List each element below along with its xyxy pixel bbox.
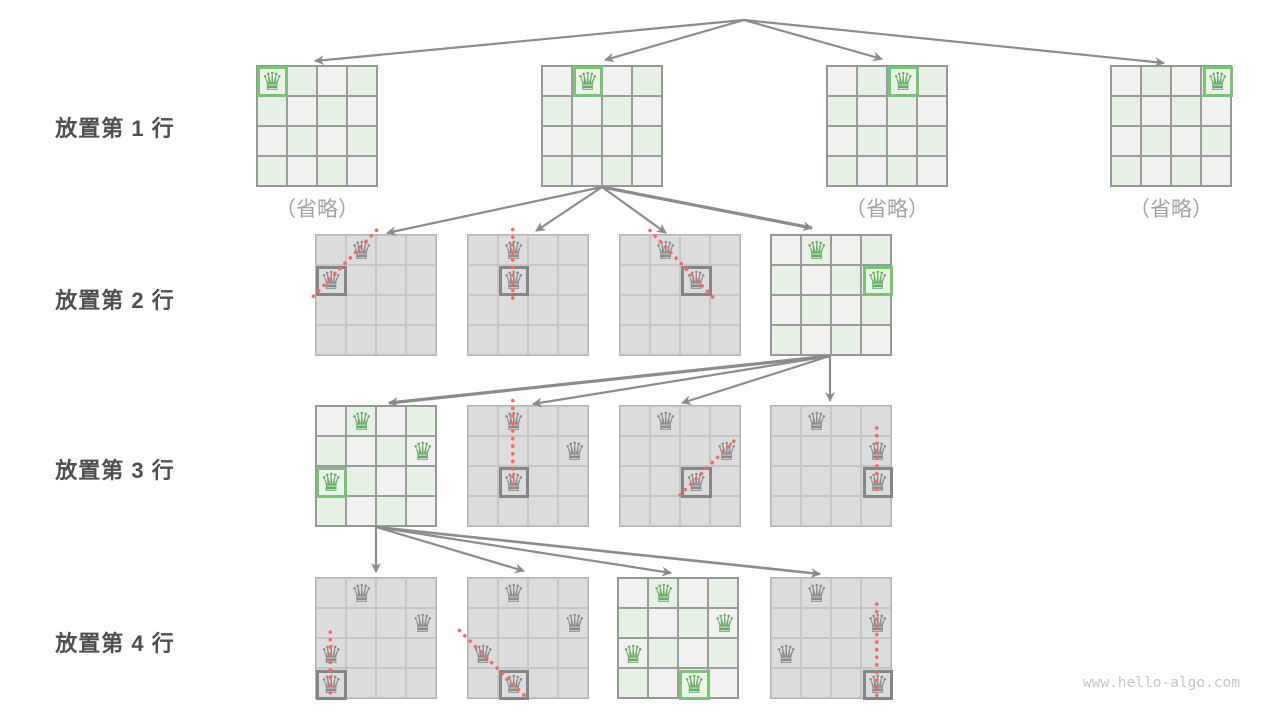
board-cell bbox=[528, 496, 558, 526]
tree-arrow bbox=[387, 187, 602, 233]
board-cell bbox=[406, 668, 436, 698]
board-cell bbox=[632, 126, 662, 156]
board-cell bbox=[831, 265, 861, 295]
board-cell bbox=[861, 436, 891, 466]
tree-arrow bbox=[533, 356, 830, 404]
new-queen-highlight-box bbox=[573, 66, 604, 97]
omitted-label: （省略） bbox=[256, 193, 378, 223]
board-cell bbox=[771, 406, 801, 436]
board-cell bbox=[1171, 66, 1201, 96]
board-cell bbox=[801, 265, 831, 295]
board-cell bbox=[801, 466, 831, 496]
board-cell bbox=[602, 126, 632, 156]
board-cell bbox=[650, 325, 680, 355]
row3-board4: ♛♛♛ bbox=[770, 405, 892, 527]
board-cell bbox=[801, 638, 831, 668]
board-cell bbox=[468, 265, 498, 295]
board-cell bbox=[861, 325, 891, 355]
board-cell bbox=[1141, 156, 1171, 186]
board-cell bbox=[771, 466, 801, 496]
board-cell bbox=[801, 496, 831, 526]
new-queen-highlight-box bbox=[681, 467, 712, 498]
new-queen-highlight-box bbox=[1203, 66, 1234, 97]
board-cell bbox=[406, 235, 436, 265]
board-cell bbox=[346, 436, 376, 466]
board-cell bbox=[572, 96, 602, 126]
board-cell bbox=[316, 496, 346, 526]
board-cell bbox=[498, 578, 528, 608]
board-cell bbox=[827, 96, 857, 126]
board-cell bbox=[620, 325, 650, 355]
tree-arrow bbox=[376, 527, 524, 571]
board-cell bbox=[346, 325, 376, 355]
tree-arrow bbox=[602, 187, 812, 228]
board-cell bbox=[710, 436, 740, 466]
board-cell bbox=[771, 325, 801, 355]
omitted-label: （省略） bbox=[1110, 193, 1232, 223]
row-label-place-row-4: 放置第 4 行 bbox=[30, 626, 200, 658]
board-cell bbox=[528, 608, 558, 638]
board-cell bbox=[468, 668, 498, 698]
new-queen-highlight-box bbox=[316, 266, 347, 297]
board-cell bbox=[316, 436, 346, 466]
board-cell bbox=[376, 235, 406, 265]
row4-board4: ♛♛♛♛ bbox=[770, 577, 892, 699]
board-cell bbox=[468, 466, 498, 496]
tree-arrow bbox=[376, 527, 671, 573]
board-cell bbox=[620, 295, 650, 325]
board-cell bbox=[468, 406, 498, 436]
board-cell bbox=[316, 406, 346, 436]
board-cell bbox=[857, 156, 887, 186]
board-cell bbox=[346, 638, 376, 668]
board-cell bbox=[317, 66, 347, 96]
new-queen-highlight-box bbox=[679, 670, 710, 701]
board-cell bbox=[468, 325, 498, 355]
new-queen-highlight-box bbox=[316, 467, 347, 498]
board-cell bbox=[632, 66, 662, 96]
board-cell bbox=[558, 325, 588, 355]
board-cell bbox=[346, 235, 376, 265]
board-cell bbox=[771, 265, 801, 295]
board-cell bbox=[710, 265, 740, 295]
board-cell bbox=[528, 325, 558, 355]
board-cell bbox=[376, 325, 406, 355]
board-cell bbox=[316, 608, 346, 638]
board-cell bbox=[708, 578, 738, 608]
board-cell bbox=[542, 96, 572, 126]
new-queen-highlight-box bbox=[863, 670, 894, 701]
board-cell bbox=[801, 578, 831, 608]
new-queen-highlight-box bbox=[499, 266, 530, 297]
board-cell bbox=[1141, 96, 1171, 126]
board-cell bbox=[680, 436, 710, 466]
tree-arrow bbox=[682, 356, 830, 403]
watermark-text: www.hello-algo.com bbox=[1083, 675, 1240, 691]
board-cell bbox=[1111, 126, 1141, 156]
new-queen-highlight-box bbox=[257, 66, 288, 97]
board-cell bbox=[406, 578, 436, 608]
tree-arrow bbox=[744, 20, 1164, 63]
board-cell bbox=[558, 638, 588, 668]
row1-board2: ♛ bbox=[541, 65, 663, 187]
board-cell bbox=[558, 436, 588, 466]
board-cell bbox=[316, 325, 346, 355]
board-cell bbox=[1171, 126, 1201, 156]
board-cell bbox=[1171, 156, 1201, 186]
board-cell bbox=[376, 466, 406, 496]
board-cell bbox=[376, 496, 406, 526]
board-cell bbox=[347, 96, 377, 126]
new-queen-highlight-box bbox=[316, 670, 347, 701]
board-cell bbox=[498, 436, 528, 466]
board-cell bbox=[406, 325, 436, 355]
board-cell bbox=[771, 295, 801, 325]
board-cell bbox=[680, 235, 710, 265]
board-cell bbox=[528, 578, 558, 608]
row3-board1: ♛♛♛ bbox=[315, 405, 437, 527]
board-cell bbox=[346, 668, 376, 698]
board-cell bbox=[347, 156, 377, 186]
board-cell bbox=[468, 235, 498, 265]
board-cell bbox=[771, 608, 801, 638]
board-cell bbox=[528, 638, 558, 668]
board-cell bbox=[498, 235, 528, 265]
board-cell bbox=[827, 156, 857, 186]
board-cell bbox=[346, 608, 376, 638]
board-cell bbox=[771, 638, 801, 668]
board-cell bbox=[680, 325, 710, 355]
board-cell bbox=[648, 668, 678, 698]
board-cell bbox=[648, 608, 678, 638]
tree-arrow bbox=[376, 527, 820, 574]
board-cell bbox=[376, 638, 406, 668]
row1-board3: ♛ bbox=[826, 65, 948, 187]
board-cell bbox=[498, 406, 528, 436]
board-cell bbox=[528, 436, 558, 466]
board-cell bbox=[1111, 66, 1141, 96]
new-queen-highlight-box bbox=[863, 266, 894, 297]
board-cell bbox=[346, 466, 376, 496]
board-cell bbox=[861, 578, 891, 608]
board-cell bbox=[618, 638, 648, 668]
board-cell bbox=[558, 608, 588, 638]
row-label-place-row-2: 放置第 2 行 bbox=[30, 283, 200, 315]
board-cell bbox=[801, 235, 831, 265]
board-cell bbox=[1201, 156, 1231, 186]
board-cell bbox=[376, 608, 406, 638]
board-cell bbox=[620, 235, 650, 265]
board-cell bbox=[861, 406, 891, 436]
board-cell bbox=[498, 638, 528, 668]
board-cell bbox=[528, 668, 558, 698]
new-queen-highlight-box bbox=[499, 670, 530, 701]
board-cell bbox=[831, 436, 861, 466]
board-cell bbox=[680, 406, 710, 436]
board-cell bbox=[710, 295, 740, 325]
board-cell bbox=[618, 578, 648, 608]
board-cell bbox=[406, 608, 436, 638]
board-cell bbox=[648, 578, 678, 608]
board-cell bbox=[468, 295, 498, 325]
board-cell bbox=[650, 295, 680, 325]
board-cell bbox=[678, 578, 708, 608]
board-cell bbox=[468, 436, 498, 466]
board-cell bbox=[1201, 96, 1231, 126]
board-cell bbox=[528, 265, 558, 295]
board-cell bbox=[708, 668, 738, 698]
board-cell bbox=[317, 156, 347, 186]
board-cell bbox=[710, 325, 740, 355]
board-cell bbox=[708, 608, 738, 638]
board-cell bbox=[376, 668, 406, 698]
board-cell bbox=[558, 295, 588, 325]
board-cell bbox=[602, 156, 632, 186]
board-cell bbox=[801, 406, 831, 436]
new-queen-highlight-box bbox=[681, 266, 712, 297]
row1-board1: ♛ bbox=[256, 65, 378, 187]
board-cell bbox=[917, 66, 947, 96]
board-cell bbox=[801, 295, 831, 325]
board-cell bbox=[632, 156, 662, 186]
board-cell bbox=[771, 436, 801, 466]
board-cell bbox=[316, 235, 346, 265]
board-cell bbox=[1111, 96, 1141, 126]
board-cell bbox=[406, 466, 436, 496]
board-cell bbox=[771, 235, 801, 265]
board-cell bbox=[887, 96, 917, 126]
board-cell bbox=[346, 496, 376, 526]
board-cell bbox=[602, 66, 632, 96]
board-cell bbox=[572, 156, 602, 186]
board-cell bbox=[831, 235, 861, 265]
new-queen-highlight-box bbox=[863, 467, 894, 498]
board-cell bbox=[831, 578, 861, 608]
board-cell bbox=[316, 638, 346, 668]
board-cell bbox=[831, 466, 861, 496]
board-cell bbox=[861, 638, 891, 668]
board-cell bbox=[917, 96, 947, 126]
board-cell bbox=[572, 126, 602, 156]
board-cell bbox=[831, 608, 861, 638]
board-cell bbox=[861, 295, 891, 325]
board-cell bbox=[468, 608, 498, 638]
board-cell bbox=[650, 466, 680, 496]
board-cell bbox=[648, 638, 678, 668]
board-cell bbox=[317, 126, 347, 156]
board-cell bbox=[376, 578, 406, 608]
row3-board2: ♛♛♛ bbox=[467, 405, 589, 527]
board-cell bbox=[558, 496, 588, 526]
board-cell bbox=[801, 668, 831, 698]
board-cell bbox=[346, 406, 376, 436]
board-cell bbox=[1141, 126, 1171, 156]
row3-board3: ♛♛♛ bbox=[619, 405, 741, 527]
board-cell bbox=[406, 406, 436, 436]
board-cell bbox=[887, 156, 917, 186]
row4-board3: ♛♛♛♛ bbox=[617, 577, 739, 699]
board-cell bbox=[1111, 156, 1141, 186]
board-cell bbox=[376, 295, 406, 325]
board-cell bbox=[498, 325, 528, 355]
board-cell bbox=[1171, 96, 1201, 126]
board-cell bbox=[316, 578, 346, 608]
board-cell bbox=[887, 126, 917, 156]
board-cell bbox=[618, 668, 648, 698]
board-cell bbox=[1141, 66, 1171, 96]
new-queen-highlight-box bbox=[499, 467, 530, 498]
board-cell bbox=[857, 96, 887, 126]
board-cell bbox=[257, 156, 287, 186]
board-cell bbox=[406, 265, 436, 295]
board-cell bbox=[801, 436, 831, 466]
tree-arrow bbox=[536, 187, 602, 231]
board-cell bbox=[861, 608, 891, 638]
board-cell bbox=[827, 126, 857, 156]
board-cell bbox=[528, 466, 558, 496]
board-cell bbox=[346, 578, 376, 608]
board-cell bbox=[650, 406, 680, 436]
board-cell bbox=[602, 96, 632, 126]
row4-board2: ♛♛♛♛ bbox=[467, 577, 589, 699]
omitted-label: （省略） bbox=[826, 193, 948, 223]
row4-board1: ♛♛♛♛ bbox=[315, 577, 437, 699]
row2-board3: ♛♛ bbox=[619, 234, 741, 356]
board-cell bbox=[710, 406, 740, 436]
board-cell bbox=[542, 66, 572, 96]
board-cell bbox=[542, 156, 572, 186]
board-cell bbox=[376, 436, 406, 466]
board-cell bbox=[618, 608, 648, 638]
board-cell bbox=[710, 235, 740, 265]
board-cell bbox=[831, 668, 861, 698]
board-cell bbox=[498, 608, 528, 638]
board-cell bbox=[620, 406, 650, 436]
board-cell bbox=[528, 235, 558, 265]
board-cell bbox=[528, 295, 558, 325]
new-queen-highlight-box bbox=[888, 66, 919, 97]
board-cell bbox=[542, 126, 572, 156]
board-cell bbox=[376, 406, 406, 436]
board-cell bbox=[708, 638, 738, 668]
tree-arrow bbox=[389, 356, 830, 403]
board-cell bbox=[917, 156, 947, 186]
board-cell bbox=[632, 96, 662, 126]
board-cell bbox=[857, 126, 887, 156]
board-cell bbox=[680, 295, 710, 325]
tree-arrow bbox=[315, 20, 744, 61]
board-cell bbox=[650, 265, 680, 295]
board-cell bbox=[317, 96, 347, 126]
tree-arrow bbox=[605, 20, 744, 60]
board-cell bbox=[346, 295, 376, 325]
board-cell bbox=[558, 406, 588, 436]
board-cell bbox=[801, 325, 831, 355]
board-cell bbox=[831, 406, 861, 436]
board-cell bbox=[257, 126, 287, 156]
board-cell bbox=[468, 638, 498, 668]
tree-arrow bbox=[602, 187, 666, 233]
board-cell bbox=[287, 66, 317, 96]
board-cell bbox=[917, 126, 947, 156]
board-cell bbox=[771, 578, 801, 608]
board-cell bbox=[831, 325, 861, 355]
board-cell bbox=[680, 496, 710, 526]
board-cell bbox=[710, 466, 740, 496]
board-cell bbox=[528, 406, 558, 436]
board-cell bbox=[498, 295, 528, 325]
board-cell bbox=[406, 638, 436, 668]
board-cell bbox=[678, 638, 708, 668]
board-cell bbox=[376, 265, 406, 295]
board-cell bbox=[861, 235, 891, 265]
board-cell bbox=[406, 295, 436, 325]
board-cell bbox=[558, 265, 588, 295]
board-cell bbox=[316, 295, 346, 325]
board-cell bbox=[831, 638, 861, 668]
board-cell bbox=[620, 265, 650, 295]
board-cell bbox=[710, 496, 740, 526]
board-cell bbox=[857, 66, 887, 96]
board-cell bbox=[801, 608, 831, 638]
board-cell bbox=[620, 436, 650, 466]
board-cell bbox=[558, 578, 588, 608]
board-cell bbox=[771, 496, 801, 526]
board-cell bbox=[771, 668, 801, 698]
board-cell bbox=[1201, 126, 1231, 156]
nqueens-backtracking-tree-diagram: 放置第 1 行 放置第 2 行 放置第 3 行 放置第 4 行 ♛（省略）♛♛（… bbox=[0, 0, 1280, 720]
board-cell bbox=[620, 466, 650, 496]
board-cell bbox=[558, 235, 588, 265]
board-cell bbox=[650, 496, 680, 526]
board-cell bbox=[558, 466, 588, 496]
board-cell bbox=[831, 295, 861, 325]
board-cell bbox=[406, 436, 436, 466]
row2-board4: ♛♛ bbox=[770, 234, 892, 356]
board-cell bbox=[558, 668, 588, 698]
tree-arrow bbox=[744, 20, 882, 59]
board-cell bbox=[831, 496, 861, 526]
board-cell bbox=[406, 496, 436, 526]
board-cell bbox=[287, 156, 317, 186]
board-cell bbox=[650, 235, 680, 265]
board-cell bbox=[678, 608, 708, 638]
board-cell bbox=[347, 66, 377, 96]
board-cell bbox=[650, 436, 680, 466]
board-cell bbox=[620, 496, 650, 526]
board-cell bbox=[346, 265, 376, 295]
row1-board4: ♛ bbox=[1110, 65, 1232, 187]
board-cell bbox=[861, 496, 891, 526]
row2-board2: ♛♛ bbox=[467, 234, 589, 356]
board-cell bbox=[468, 496, 498, 526]
board-cell bbox=[498, 496, 528, 526]
board-cell bbox=[287, 126, 317, 156]
board-cell bbox=[287, 96, 317, 126]
row-label-place-row-3: 放置第 3 行 bbox=[30, 453, 200, 485]
board-cell bbox=[257, 96, 287, 126]
row2-board1: ♛♛ bbox=[315, 234, 437, 356]
board-cell bbox=[468, 578, 498, 608]
board-cell bbox=[827, 66, 857, 96]
board-cell bbox=[347, 126, 377, 156]
row-label-place-row-1: 放置第 1 行 bbox=[30, 111, 200, 143]
